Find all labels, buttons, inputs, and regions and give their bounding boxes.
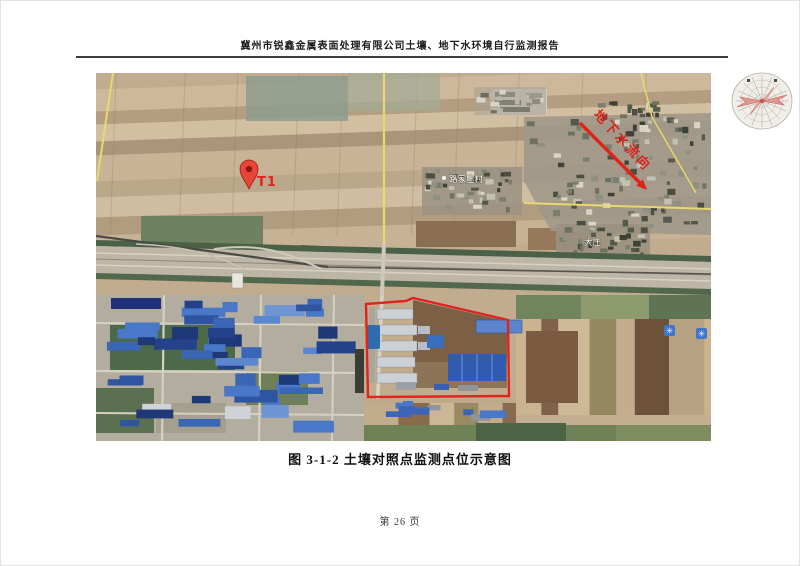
map-texture [235,373,255,386]
map-texture [616,319,635,415]
map-texture [590,319,617,415]
map-texture [450,193,455,198]
map-texture [554,153,561,157]
map-texture [118,329,158,339]
satellite-map-figure: 地下水流向 T1 路家庄村 大庄 ✳ ✳ [96,73,711,441]
map-texture [580,246,584,252]
overpass-road [382,243,384,295]
factory-roof [427,335,444,348]
map-texture [597,228,605,232]
map-texture [600,248,607,252]
map-texture [658,197,665,202]
map-texture [553,210,560,216]
plowed-field [526,331,578,403]
map-texture [296,305,321,312]
map-texture [427,174,435,179]
map-texture [527,121,535,126]
map-texture [497,188,500,192]
map-texture [499,90,505,95]
map-texture [595,195,603,202]
map-texture [642,240,647,243]
map-texture [633,241,641,247]
map-texture [224,386,260,397]
village-label: 大庄 [584,237,602,248]
map-texture [138,337,155,345]
map-texture [625,245,629,249]
map-texture [682,136,688,139]
map-texture [668,159,675,163]
map-texture [473,205,482,209]
map-texture [682,127,688,133]
map-texture [640,125,649,132]
map-texture [668,105,674,110]
map-texture [608,193,615,197]
map-texture [628,228,634,233]
map-texture [583,158,590,162]
wind-rose-icon [730,71,794,131]
map-texture [487,194,496,200]
map-texture [299,373,320,384]
map-texture [567,190,572,194]
map-texture [673,201,682,206]
map-texture [595,188,599,194]
map-texture [527,103,532,106]
map-texture [491,110,497,113]
map-texture [108,379,142,385]
map-texture [613,177,620,183]
map-texture [694,122,700,128]
map-texture [172,327,198,339]
map-texture [620,114,627,118]
map-texture [185,301,203,309]
blue-poi-icon: ✳ [696,328,707,339]
map-texture [532,99,540,105]
map-texture [608,247,614,250]
map-texture [653,107,660,112]
map-texture [497,96,502,100]
map-texture [241,347,261,358]
green-field [616,425,711,441]
map-texture [471,188,479,191]
map-texture [254,316,280,324]
map-texture [225,406,251,419]
figure-caption: 图 3-1-2 土壤对照点监测点位示意图 [1,449,799,468]
map-texture [582,133,589,139]
plowed-field [416,221,516,247]
map-texture [655,113,659,118]
svg-text:大庄: 大庄 [584,237,602,248]
svg-text:✳: ✳ [698,330,705,339]
field-patch [348,73,440,111]
map-texture [673,139,678,145]
map-texture [399,406,415,412]
map-texture [192,396,211,403]
satellite-map: 地下水流向 T1 路家庄村 大庄 ✳ ✳ [96,73,711,441]
map-texture [660,171,666,175]
map-texture [431,182,437,187]
map-texture [605,178,611,182]
map-texture [530,138,538,144]
map-texture [504,172,511,177]
map-texture [586,209,592,215]
map-texture [484,173,490,177]
map-texture [667,189,675,195]
map-texture [702,183,706,188]
map-texture [499,197,506,201]
map-texture [652,101,659,105]
map-texture [182,350,213,359]
map-texture [588,222,596,226]
map-texture [435,169,440,173]
map-texture [279,375,300,385]
map-texture [537,143,545,147]
map-texture [469,199,474,203]
map-texture [633,125,637,132]
map-texture [523,95,529,100]
map-texture [571,119,579,126]
map-texture [650,223,653,228]
factory-roof [111,298,161,309]
map-texture [647,176,656,180]
map-texture [592,176,599,182]
map-texture [477,97,486,103]
map-texture [631,214,639,217]
map-texture [663,217,672,223]
map-texture [576,175,584,179]
map-texture [481,192,485,195]
map-texture [631,248,635,252]
map-texture [693,183,700,189]
map-texture [443,184,447,188]
pond [367,325,380,349]
map-texture [120,420,139,426]
map-texture [154,339,197,350]
map-texture [179,419,221,427]
map-texture [632,109,637,115]
map-texture [280,388,324,395]
map-texture [694,167,697,170]
map-texture [433,195,440,200]
map-texture [565,227,573,233]
page-number: 第 26 页 [1,513,799,528]
map-texture [449,186,455,190]
map-texture [563,237,570,241]
map-texture [223,302,238,312]
map-texture [136,410,173,419]
map-texture [667,181,670,184]
map-texture [496,108,503,113]
map-texture [506,207,510,213]
map-texture [490,102,499,107]
green-field [476,423,566,441]
map-texture [686,151,691,155]
header-rule [76,56,728,58]
map-texture [567,183,573,188]
map-texture [428,405,441,410]
svg-text:路家庄村: 路家庄村 [449,174,484,185]
map-texture [318,327,337,339]
svg-text:✳: ✳ [666,327,673,336]
map-texture [509,180,512,185]
map-texture [426,185,431,190]
map-texture [625,161,629,165]
map-texture [638,234,645,238]
map-texture [505,179,509,182]
map-texture [428,181,432,185]
map-texture [515,99,520,105]
map-texture [482,201,488,205]
map-texture [557,195,561,199]
blue-poi-icon: ✳ [664,325,675,336]
map-texture [702,134,705,140]
map-texture [684,221,690,224]
map-texture [468,192,475,196]
village-label: 路家庄村 [442,174,484,185]
map-texture [500,176,505,179]
map-texture [577,221,586,225]
map-texture [481,93,489,98]
map-texture [612,101,618,105]
map-texture [648,121,652,124]
map-texture [208,328,234,338]
map-texture [623,220,628,227]
map-texture [619,186,623,192]
map-texture [664,199,672,204]
dark-building [355,349,364,393]
map-texture [446,205,451,210]
map-texture [674,119,678,123]
map-texture [490,93,494,99]
factory-roof [476,320,522,333]
map-texture [498,183,502,186]
marker-label: T1 [257,175,277,190]
report-page: 冀州市锐鑫金属表面处理有限公司土壤、地下水环境自行监测报告 [0,0,800,566]
map-texture [635,319,669,415]
map-texture [262,405,289,418]
field-patch [246,76,348,121]
map-texture [572,182,579,185]
map-texture [620,235,627,240]
map-texture [558,163,564,168]
map-texture [626,233,631,238]
map-texture [293,421,334,433]
map-texture [641,227,648,233]
map-texture [678,127,682,131]
map-texture [480,410,506,418]
map-texture [628,109,632,113]
map-texture [478,191,481,195]
map-texture [561,197,567,200]
header-title: 冀州市锐鑫金属表面处理有限公司土壤、地下水环境自行监测报告 [1,37,799,52]
map-texture [485,179,493,184]
map-texture [216,358,259,366]
map-texture [641,108,645,111]
map-texture [317,341,356,353]
map-texture [576,126,581,131]
map-texture [457,194,465,198]
map-texture [642,216,648,221]
map-texture [651,209,655,216]
map-texture [645,139,650,144]
map-texture [691,221,698,224]
map-texture [640,114,645,117]
map-texture [690,141,693,146]
map-texture [591,233,596,237]
map-texture [107,342,140,351]
map-texture [568,132,575,136]
toll-gate [232,273,243,288]
map-texture [482,170,487,174]
map-texture [607,233,612,236]
village-dot-icon [442,176,446,180]
map-texture [578,239,582,243]
map-texture [663,117,666,122]
map-texture [498,169,503,172]
